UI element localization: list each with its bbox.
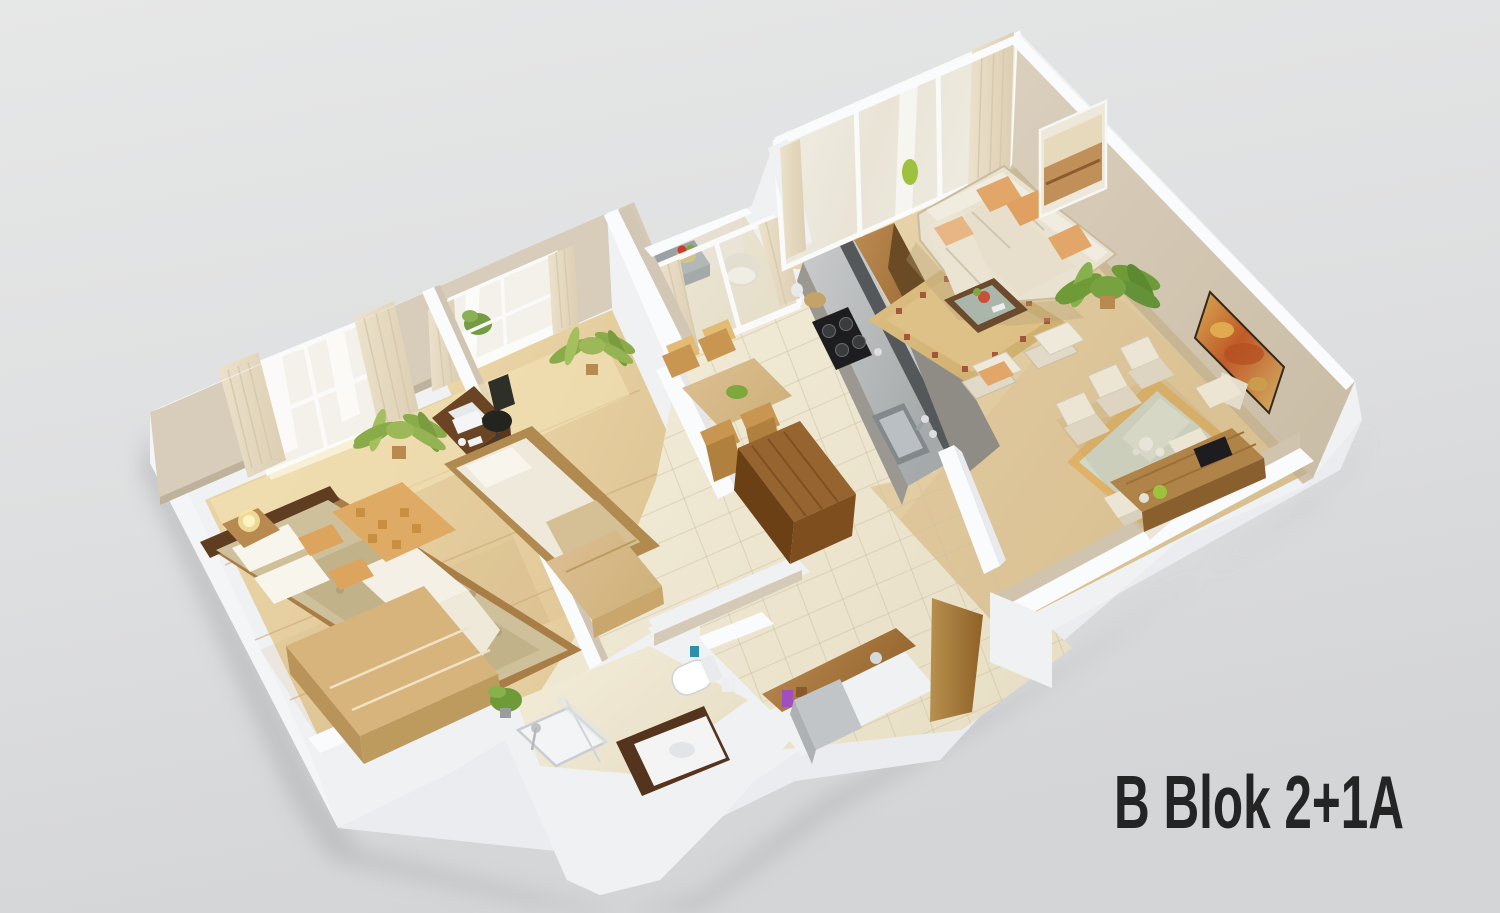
svg-text:B Blok 2+1A: B Blok 2+1A [1114,760,1404,844]
